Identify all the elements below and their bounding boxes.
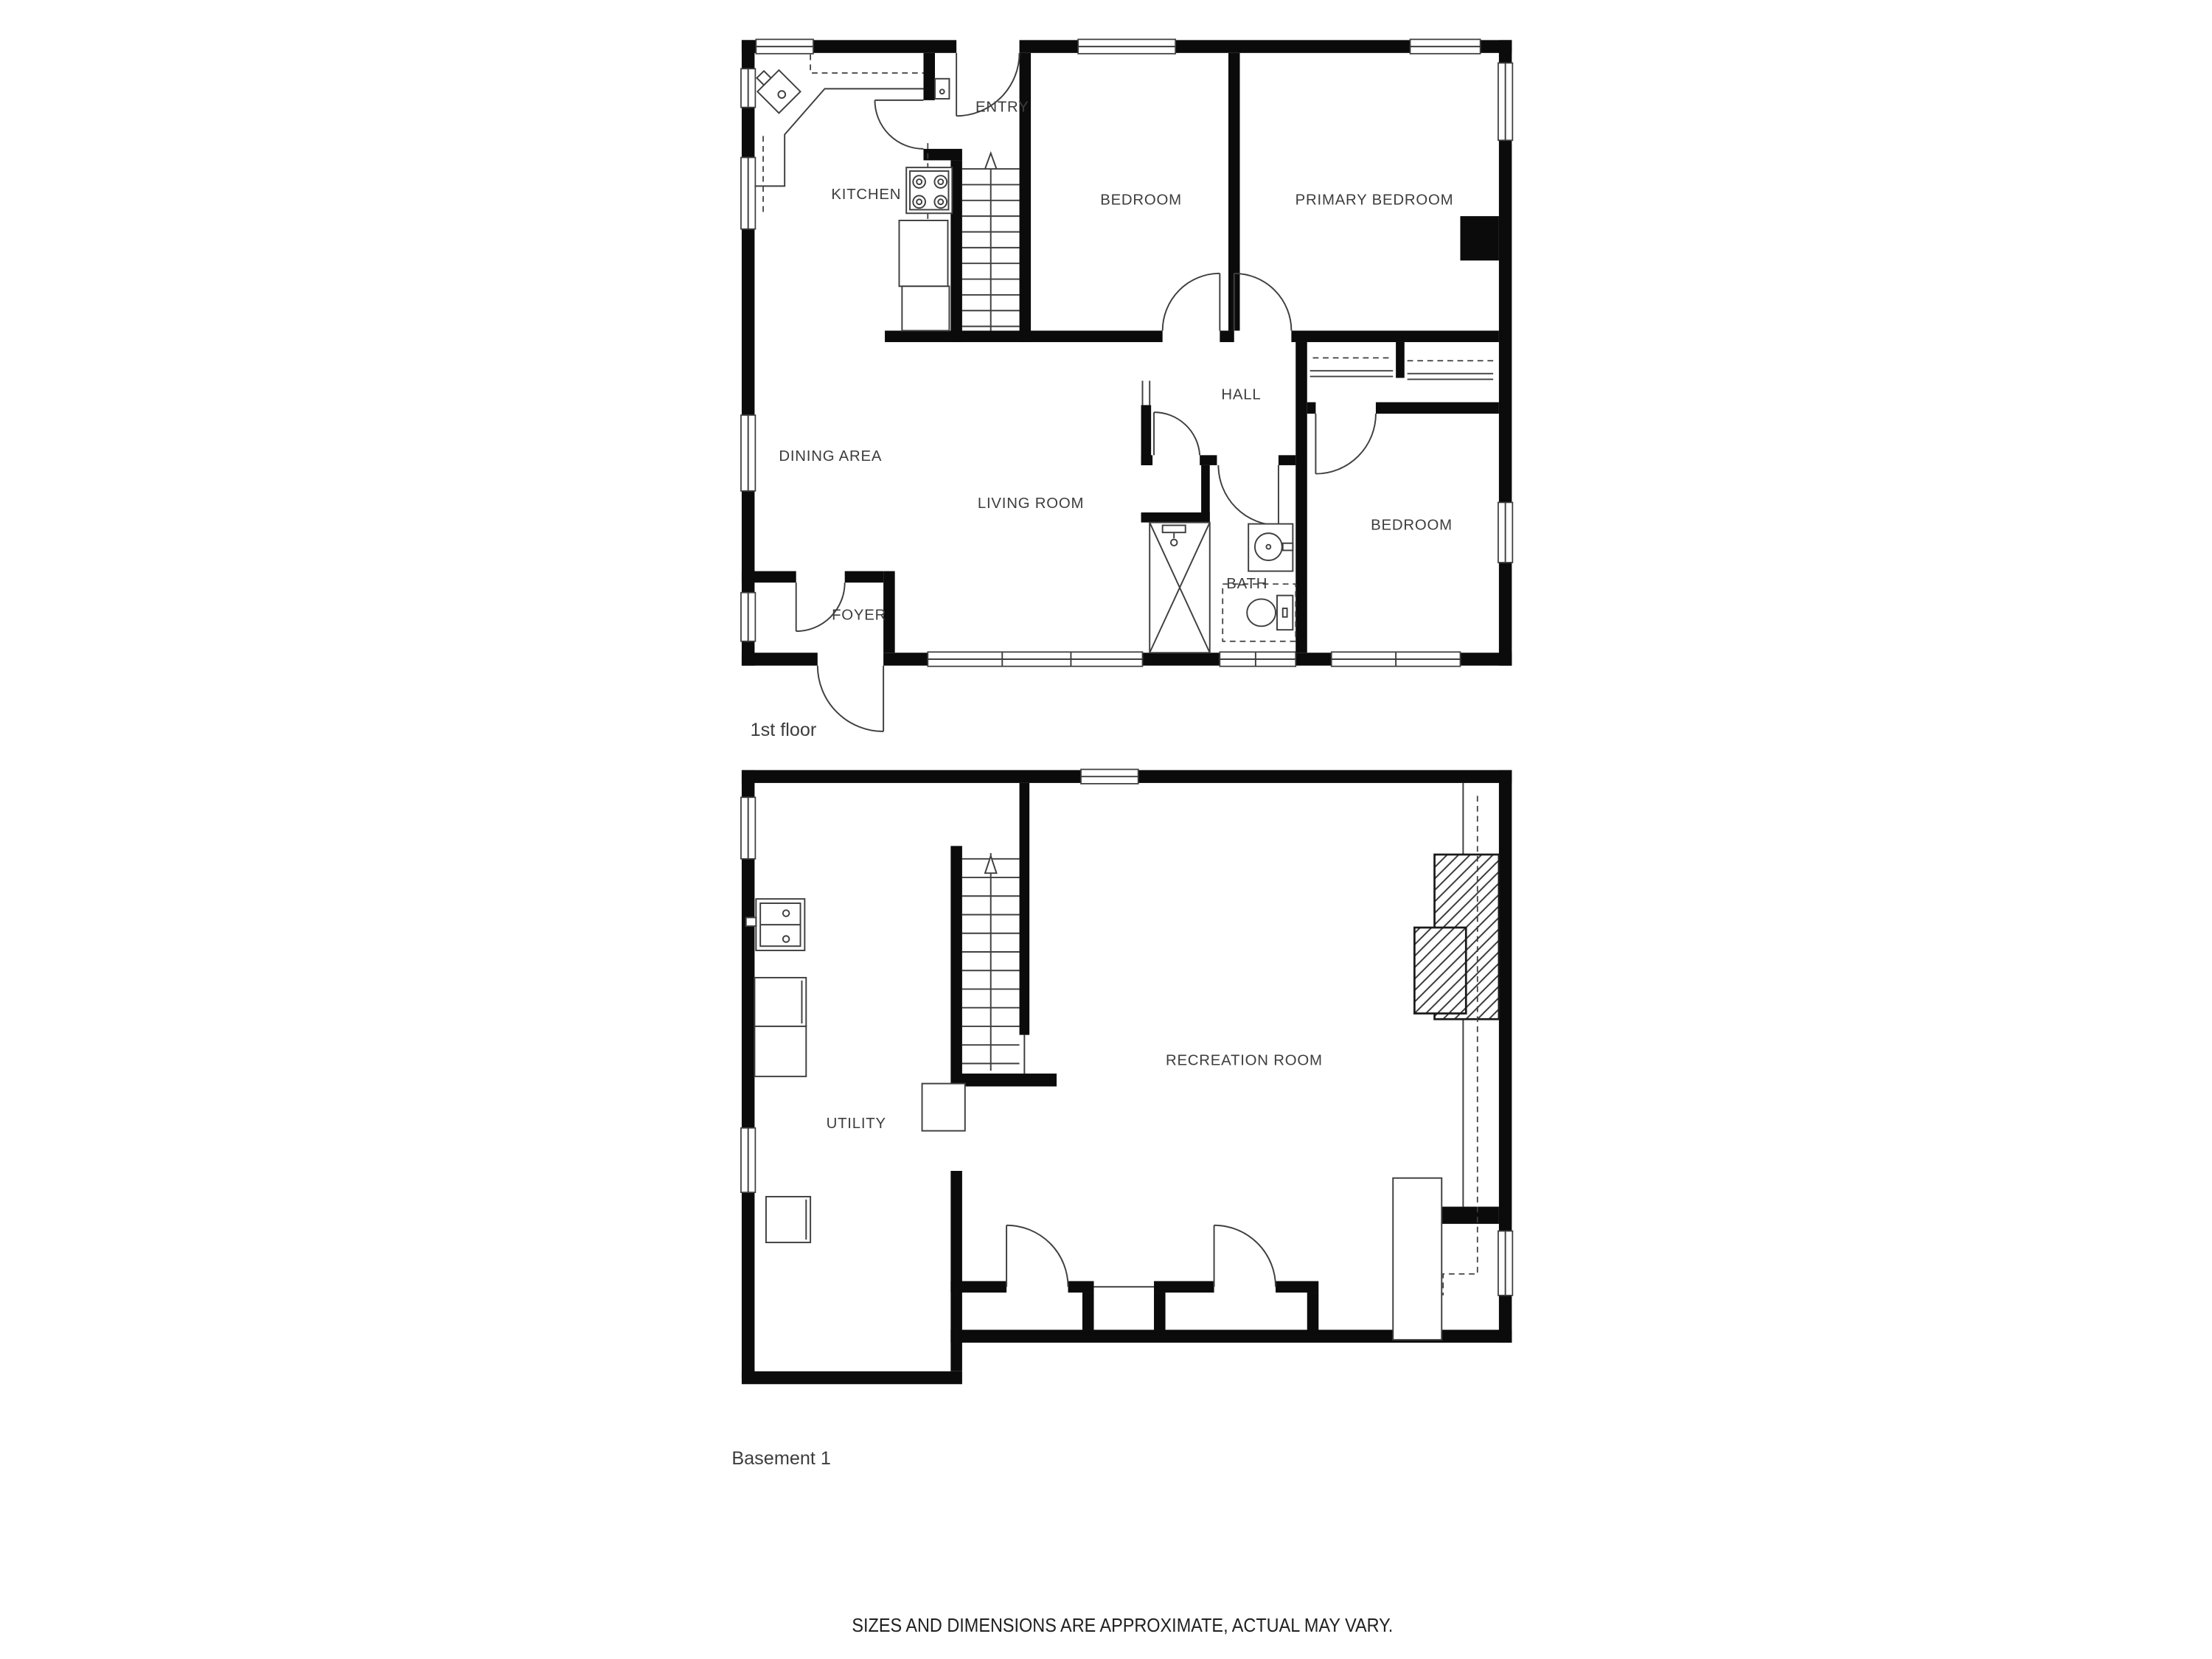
floor-plan-page: KITCHEN ENTRY BEDROOM PRIMARY BEDROOM HA… <box>0 0 2212 1659</box>
window-marker <box>741 593 755 641</box>
disclaimer-text: SIZES AND DIMENSIONS ARE APPROXIMATE, AC… <box>852 1614 1393 1636</box>
room-label-entry: ENTRY <box>975 99 1029 115</box>
first-floor-plan: KITCHEN ENTRY BEDROOM PRIMARY BEDROOM HA… <box>741 39 1512 740</box>
door-swing-icon <box>818 666 883 731</box>
entry-fixture <box>935 79 949 99</box>
room-label-foyer: FOYER <box>832 608 886 624</box>
door-swing-icon <box>1214 1225 1276 1287</box>
window-marker <box>741 797 755 858</box>
washer-icon <box>754 978 806 1026</box>
window-marker <box>1411 39 1481 53</box>
toilet-icon <box>1222 584 1295 641</box>
window-marker <box>741 158 755 229</box>
room-label-recreation-room: RECREATION ROOM <box>1166 1052 1323 1068</box>
room-label-bedroom-right: BEDROOM <box>1371 517 1453 533</box>
room-label-hall: HALL <box>1221 387 1261 403</box>
window-marker <box>1081 769 1138 783</box>
door-swing-icon <box>1234 274 1292 331</box>
freezer-icon <box>766 1197 810 1242</box>
door-swings <box>1006 1225 1276 1287</box>
window-marker <box>741 1128 755 1192</box>
wall-chimney-block <box>1460 216 1498 260</box>
door-swing-icon <box>1163 274 1220 331</box>
room-label-kitchen: KITCHEN <box>831 187 901 203</box>
door-swing-icon <box>1006 1225 1068 1287</box>
window-marker <box>756 39 813 53</box>
basement-plan: UTILITY RECREATION ROOM Basement 1 <box>731 769 1512 1469</box>
window-marker <box>1498 1231 1512 1295</box>
window-marker <box>1078 39 1175 53</box>
door-swing-icon <box>874 100 923 149</box>
floor-plan-canvas: KITCHEN ENTRY BEDROOM PRIMARY BEDROOM HA… <box>0 0 2212 1659</box>
interior-walls <box>742 53 1499 653</box>
refrigerator-icon <box>899 220 949 330</box>
window-marker <box>1220 652 1295 666</box>
window-marker <box>1498 502 1512 563</box>
vanity-sink-icon <box>1248 524 1293 571</box>
window-marker <box>1498 63 1512 140</box>
kitchen-sink-icon <box>757 70 800 113</box>
laundry-sink-icon <box>746 899 805 950</box>
floor-caption-first: 1st floor <box>751 720 817 740</box>
door-swing-icon <box>1154 412 1200 455</box>
door-swing-icon <box>1218 465 1279 526</box>
window-marker <box>741 415 755 491</box>
stove-icon <box>906 167 952 213</box>
room-label-bedroom-top: BEDROOM <box>1100 192 1182 209</box>
stairs-up-icon <box>962 153 1020 331</box>
door-swing-icon <box>1315 414 1376 474</box>
room-label-dining-area: DINING AREA <box>779 448 882 465</box>
window-marker <box>1332 652 1461 666</box>
water-heater-icon <box>922 1084 965 1131</box>
storage-cabinet <box>1393 1178 1441 1340</box>
room-label-utility: UTILITY <box>827 1116 886 1132</box>
window-marker <box>928 652 1142 666</box>
stairs-up-icon <box>962 853 1020 1071</box>
fireplace-icon <box>1414 783 1499 1207</box>
dryer-icon <box>754 1026 806 1077</box>
room-label-bath: BATH <box>1226 576 1267 592</box>
floor-caption-basement: Basement 1 <box>731 1448 831 1469</box>
room-label-primary-bedroom: PRIMARY BEDROOM <box>1295 192 1454 209</box>
shower-icon <box>1150 523 1210 653</box>
window-marker <box>741 69 755 107</box>
room-label-living-room: LIVING ROOM <box>978 495 1084 512</box>
